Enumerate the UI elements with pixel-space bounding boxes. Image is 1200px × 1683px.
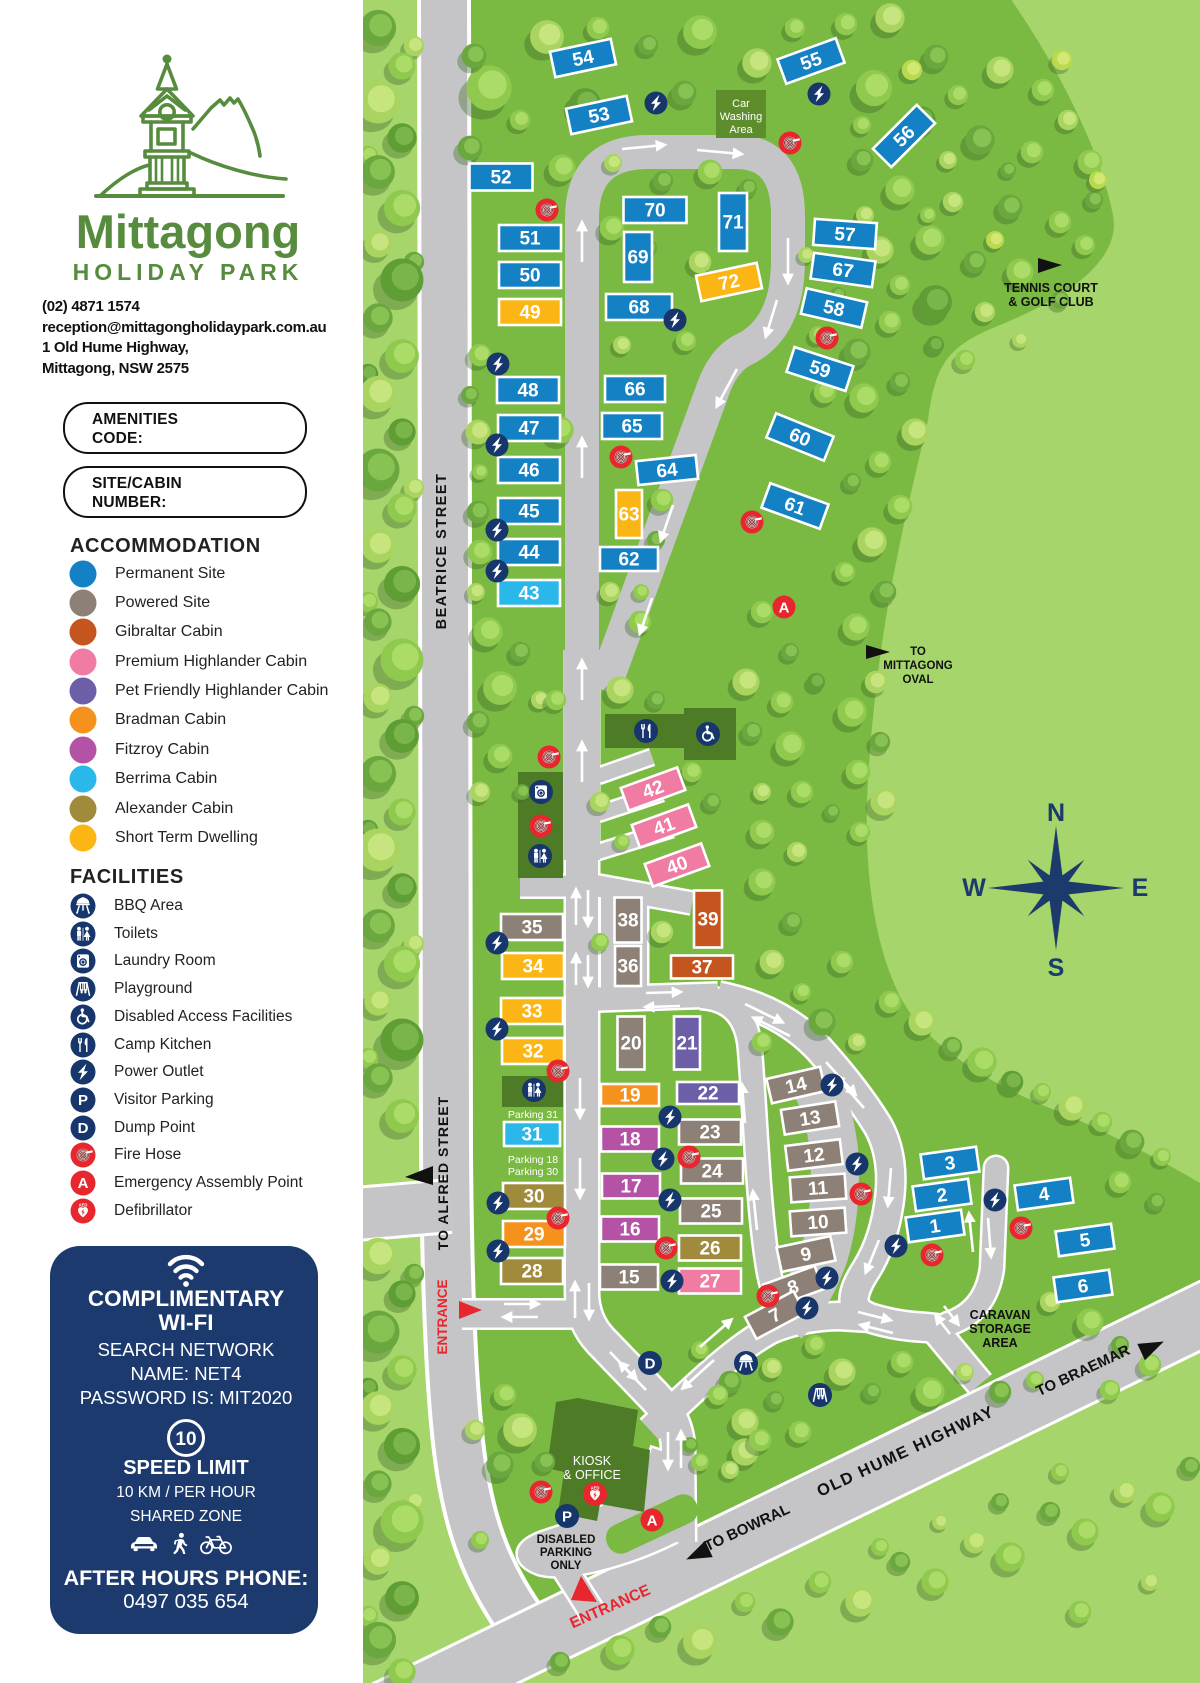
svg-text:10: 10 <box>807 1212 830 1234</box>
svg-text:49: 49 <box>519 303 540 324</box>
svg-text:Parking 31: Parking 31 <box>508 1109 558 1121</box>
svg-text:68: 68 <box>628 298 649 319</box>
svg-text:20: 20 <box>620 1034 641 1055</box>
svg-text:A: A <box>647 1512 658 1529</box>
svg-text:CARAVAN: CARAVAN <box>970 1308 1031 1322</box>
svg-text:38: 38 <box>617 911 638 932</box>
svg-text:S: S <box>1048 954 1065 982</box>
svg-text:44: 44 <box>518 543 540 564</box>
svg-text:W: W <box>962 874 986 902</box>
svg-text:13: 13 <box>798 1107 822 1131</box>
svg-text:29: 29 <box>523 1225 544 1246</box>
svg-text:ONLY: ONLY <box>551 1560 582 1572</box>
svg-text:& OFFICE: & OFFICE <box>563 1468 621 1482</box>
svg-text:62: 62 <box>618 550 639 571</box>
svg-text:31: 31 <box>521 1125 543 1146</box>
svg-text:57: 57 <box>834 224 857 246</box>
svg-text:71: 71 <box>722 213 744 234</box>
svg-text:67: 67 <box>831 259 855 283</box>
svg-text:E: E <box>1132 874 1149 902</box>
svg-text:33: 33 <box>521 1002 542 1023</box>
svg-text:15: 15 <box>618 1268 640 1289</box>
svg-text:Parking 30: Parking 30 <box>508 1166 558 1178</box>
svg-text:MITTAGONG: MITTAGONG <box>883 660 952 672</box>
svg-text:Washing: Washing <box>720 111 762 123</box>
svg-text:11: 11 <box>807 1178 829 1200</box>
svg-text:69: 69 <box>627 248 648 269</box>
svg-text:TO ALFRED STREET: TO ALFRED STREET <box>435 1096 451 1250</box>
svg-text:12: 12 <box>802 1144 826 1167</box>
svg-text:27: 27 <box>699 1272 720 1293</box>
svg-text:28: 28 <box>521 1262 542 1283</box>
svg-text:52: 52 <box>490 168 511 189</box>
svg-text:72: 72 <box>717 271 742 296</box>
svg-text:PARKING: PARKING <box>540 1547 592 1559</box>
svg-text:Area: Area <box>729 124 753 136</box>
svg-text:51: 51 <box>519 229 541 250</box>
svg-text:64: 64 <box>655 459 679 482</box>
svg-text:24: 24 <box>701 1162 723 1183</box>
svg-text:BEATRICE STREET: BEATRICE STREET <box>434 473 450 630</box>
svg-text:TO: TO <box>910 646 926 658</box>
svg-text:53: 53 <box>587 104 612 129</box>
svg-text:37: 37 <box>691 958 712 979</box>
svg-text:P: P <box>562 1508 572 1525</box>
svg-text:34: 34 <box>522 957 544 978</box>
svg-text:D: D <box>645 1355 656 1372</box>
svg-text:25: 25 <box>700 1202 722 1223</box>
svg-text:A: A <box>779 599 790 616</box>
svg-text:36: 36 <box>617 957 638 978</box>
svg-text:50: 50 <box>519 266 540 287</box>
svg-text:26: 26 <box>699 1239 720 1260</box>
svg-text:16: 16 <box>619 1220 640 1241</box>
svg-text:KIOSK: KIOSK <box>573 1454 612 1468</box>
svg-text:32: 32 <box>522 1042 543 1063</box>
svg-text:& GOLF CLUB: & GOLF CLUB <box>1008 295 1093 309</box>
svg-text:63: 63 <box>618 505 639 526</box>
svg-text:Car: Car <box>732 98 750 110</box>
svg-text:65: 65 <box>621 417 643 438</box>
svg-text:30: 30 <box>523 1187 544 1208</box>
svg-text:ENTRANCE: ENTRANCE <box>435 1279 450 1354</box>
svg-text:70: 70 <box>644 201 665 222</box>
svg-text:22: 22 <box>697 1084 718 1105</box>
svg-text:46: 46 <box>518 461 539 482</box>
svg-text:TENNIS COURT: TENNIS COURT <box>1004 281 1098 295</box>
svg-text:45: 45 <box>518 502 540 523</box>
svg-text:AREA: AREA <box>982 1336 1017 1350</box>
svg-text:35: 35 <box>521 918 543 939</box>
svg-text:21: 21 <box>676 1034 698 1055</box>
svg-text:N: N <box>1047 799 1065 827</box>
svg-text:STORAGE: STORAGE <box>969 1322 1031 1336</box>
svg-text:48: 48 <box>517 381 538 402</box>
svg-text:23: 23 <box>699 1123 720 1144</box>
svg-text:OVAL: OVAL <box>902 674 933 686</box>
svg-text:39: 39 <box>697 910 718 931</box>
svg-text:17: 17 <box>620 1177 641 1198</box>
svg-text:66: 66 <box>624 380 645 401</box>
svg-text:18: 18 <box>619 1130 640 1151</box>
svg-text:DISABLED: DISABLED <box>537 1534 596 1546</box>
svg-text:19: 19 <box>619 1086 640 1107</box>
svg-text:47: 47 <box>518 419 539 440</box>
svg-text:Parking 18: Parking 18 <box>508 1154 558 1166</box>
svg-text:43: 43 <box>518 584 539 605</box>
